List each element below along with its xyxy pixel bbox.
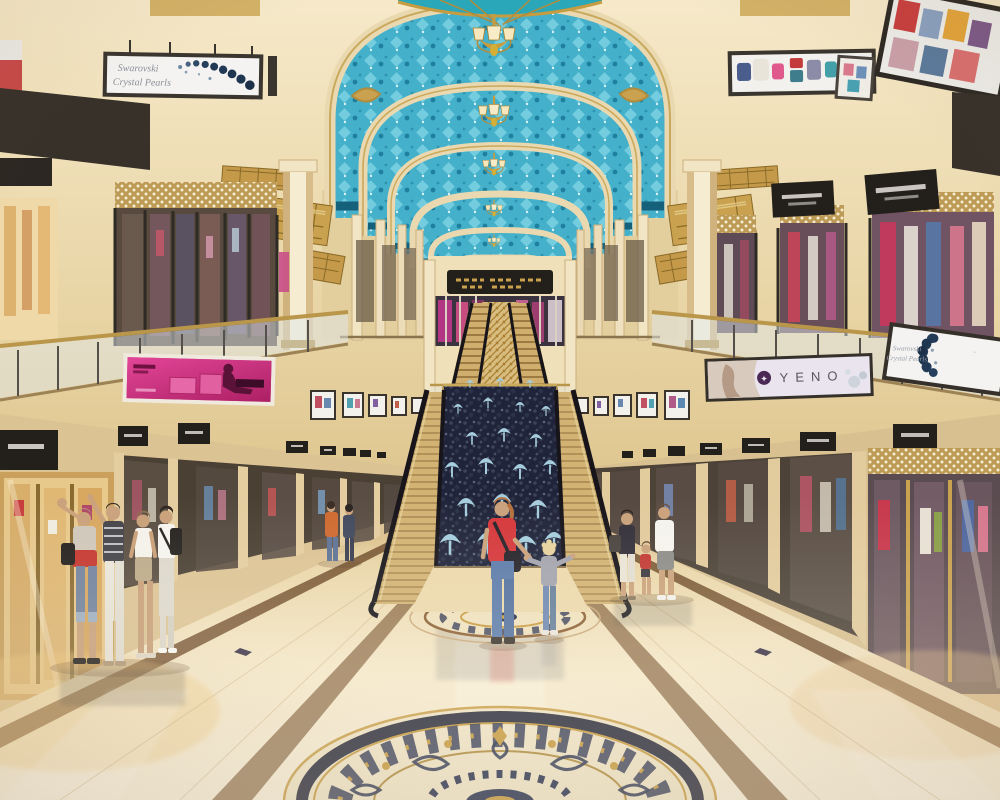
mall-atrium-scene: Swarovski Crystal Pearls	[0, 0, 1000, 800]
family-right	[609, 504, 676, 600]
people-layer	[0, 0, 1000, 800]
mother-and-child	[483, 497, 576, 644]
group-left-shoppers	[57, 494, 182, 666]
distant-shoppers-left	[325, 501, 355, 561]
